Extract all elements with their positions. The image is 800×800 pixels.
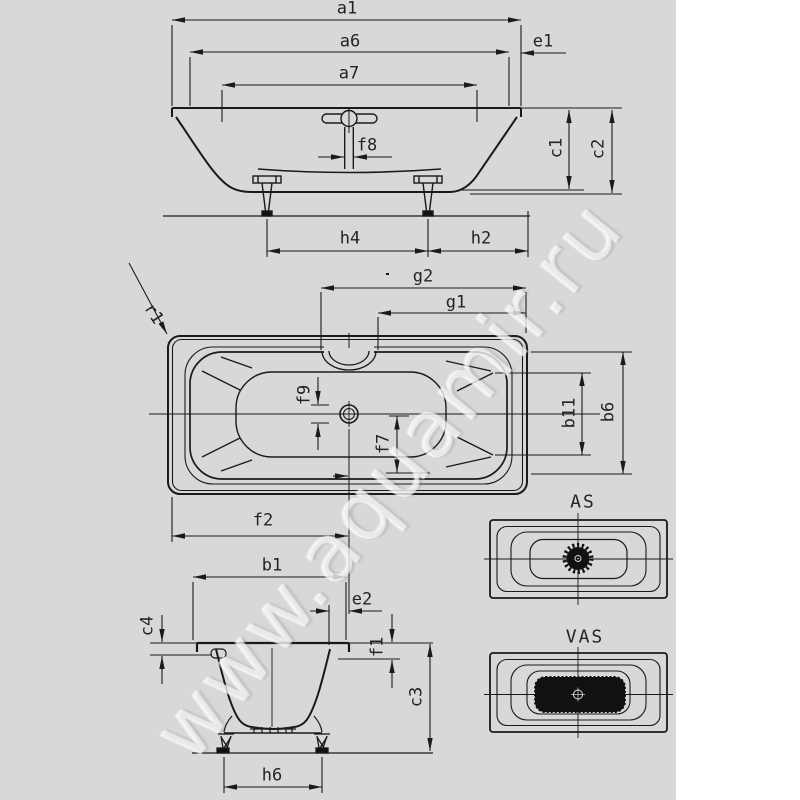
dim-label-f7: f7 (376, 434, 393, 454)
dim-label-b11: b11 (562, 398, 579, 429)
dim-label-f2: f2 (253, 513, 273, 530)
dim-label-c4: c4 (140, 616, 157, 636)
dim-label-a6: a6 (340, 34, 360, 51)
end-section-view (150, 577, 433, 793)
dim-label-a7: a7 (339, 66, 359, 83)
air-jet-gear-icon (565, 545, 592, 572)
dim-label-g2: g2 (413, 269, 433, 286)
variant-label-as: AS (570, 494, 596, 511)
dim-label-e2: e2 (352, 592, 372, 609)
dim-label-b1: b1 (262, 558, 282, 575)
whirl-panel-icon (535, 677, 625, 712)
dim-label-c3: c3 (409, 687, 426, 707)
dim-label-h6: h6 (262, 768, 282, 785)
dim-label-b6: b6 (601, 402, 618, 422)
dim-label-g1: g1 (446, 295, 466, 312)
vas-variant-view (484, 647, 673, 738)
dim-label-e1: e1 (533, 34, 553, 51)
dim-label-h2: h2 (471, 231, 491, 248)
bathtub-technical-drawing: a1 a6 a7 e1 f8 c1 c2 h4 h2 g2 g1 r1 f9 f… (0, 0, 800, 800)
dim-label-a1: a1 (337, 1, 357, 18)
dim-label-h4: h4 (340, 231, 360, 248)
dim-label-c2: c2 (591, 139, 608, 159)
variant-label-vas: VAS (566, 629, 605, 646)
dim-label-f1: f1 (370, 637, 387, 657)
dim-label-f9: f9 (297, 385, 314, 405)
drawing-linework (0, 0, 800, 800)
dim-label-f8: f8 (357, 138, 377, 155)
dim-label-c1: c1 (549, 138, 566, 158)
as-variant-view (484, 513, 673, 605)
